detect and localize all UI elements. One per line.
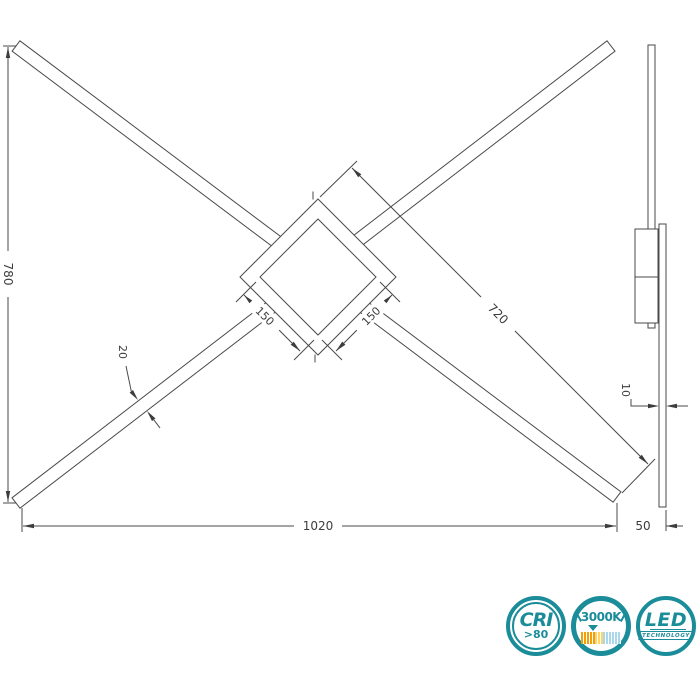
dimension-drawing: 780 1020 50 720 bbox=[0, 0, 700, 700]
dim-label-10: 10 bbox=[619, 383, 632, 397]
front-view bbox=[12, 41, 621, 508]
dim-10: 10 bbox=[619, 383, 688, 408]
technical-drawing-page: 780 1020 50 720 bbox=[0, 0, 700, 700]
dim-720: 720 bbox=[320, 161, 655, 493]
dim-780: 780 bbox=[1, 46, 16, 503]
dim-label-1020: 1020 bbox=[303, 519, 334, 533]
dim-50: 50 bbox=[635, 510, 683, 533]
dim-label-780: 780 bbox=[1, 263, 15, 286]
dim-label-20: 20 bbox=[116, 345, 129, 359]
side-bar-lower bbox=[659, 224, 666, 507]
dim-label-50: 50 bbox=[635, 519, 650, 533]
canopy-box bbox=[635, 229, 658, 323]
side-view bbox=[635, 45, 666, 507]
dim-1020: 1020 bbox=[22, 503, 617, 533]
